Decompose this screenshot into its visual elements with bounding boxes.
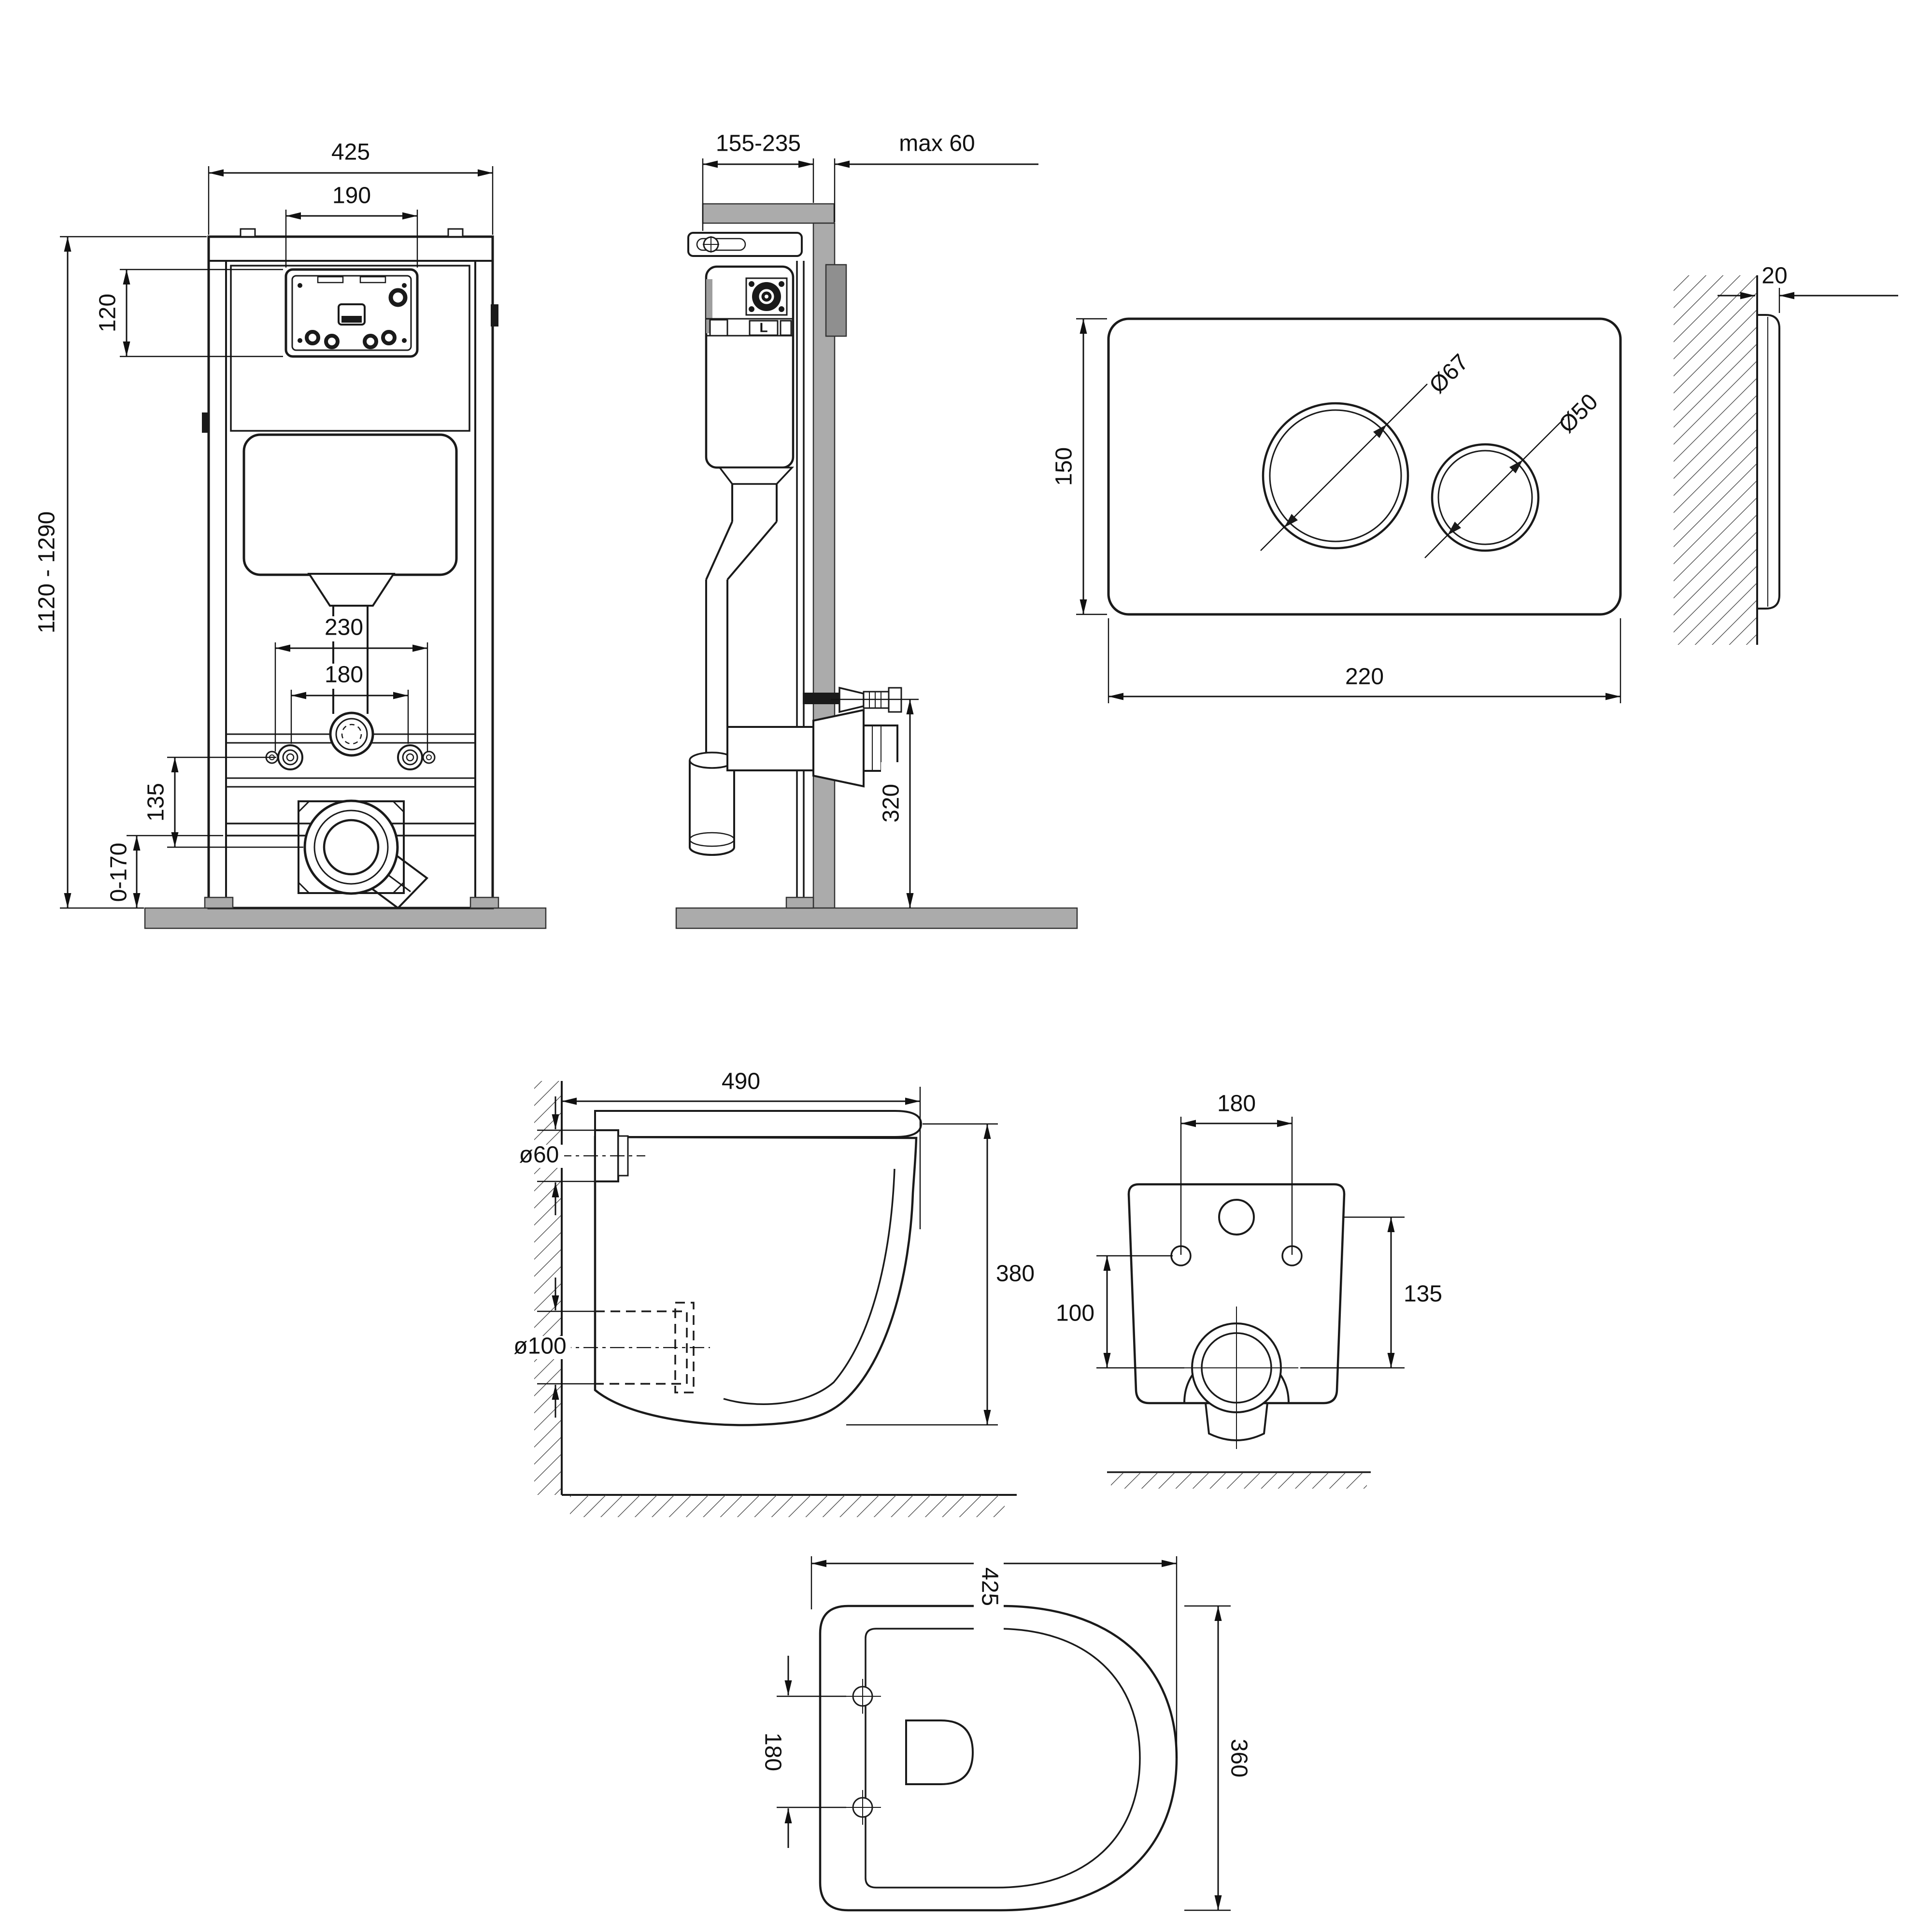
valve-mark-label: L bbox=[759, 320, 767, 335]
wall-hatch bbox=[1674, 275, 1757, 645]
outlet-connection bbox=[727, 710, 897, 786]
floor bbox=[145, 908, 546, 928]
dim-bottom-width: 360 bbox=[1184, 1606, 1251, 1910]
depth-range-label: 155-235 bbox=[716, 131, 801, 156]
inlet-dia-label: ø60 bbox=[519, 1142, 559, 1168]
rear-bolt-to-outlet-label: 100 bbox=[1056, 1301, 1094, 1326]
dim-frame-height: 1120 - 1290 bbox=[34, 237, 207, 908]
bottom-bolt-span-label: 180 bbox=[760, 1733, 785, 1771]
dim-plate-height: 150 bbox=[1051, 319, 1107, 614]
bowl-side-view: ø60 ø100 490 380 bbox=[509, 1069, 1035, 1517]
bolt-to-outlet-label: 135 bbox=[143, 783, 169, 822]
flush-pipe-side bbox=[690, 468, 792, 855]
dim-plate-width: 220 bbox=[1108, 618, 1620, 703]
plate-width-label: 220 bbox=[1345, 664, 1384, 690]
frame-width-label: 425 bbox=[331, 140, 370, 165]
base-adjust-label: 0-170 bbox=[106, 843, 132, 902]
floor-hatch bbox=[570, 1495, 1005, 1517]
flush-plate-side-view: 20 bbox=[1674, 263, 1898, 645]
rear-hole-to-outlet-label: 135 bbox=[1404, 1281, 1442, 1307]
rear-ground bbox=[1107, 1472, 1371, 1489]
bowl-bottom-view: 425 180 360 bbox=[760, 1541, 1251, 1910]
flush-plate-body bbox=[1108, 319, 1620, 614]
bowl-depth-label: 490 bbox=[722, 1069, 760, 1094]
flush-plate-front-view: Ø67 Ø50 150 220 bbox=[1051, 319, 1620, 703]
bottom-depth-label: 425 bbox=[977, 1567, 1002, 1606]
bowl-height-label: 380 bbox=[996, 1261, 1035, 1287]
plate-thickness-label: 20 bbox=[1762, 263, 1787, 289]
frame-front-view: 425 190 120 1120 - 1290 230 bbox=[34, 140, 546, 928]
frame-height-label: 1120 - 1290 bbox=[34, 511, 60, 634]
outlet-height-label: 320 bbox=[879, 784, 904, 823]
floor-side bbox=[676, 908, 1077, 928]
bolt-span-label: 180 bbox=[325, 662, 363, 688]
cistern-side: L bbox=[706, 267, 793, 468]
plate-profile bbox=[1757, 315, 1779, 609]
toilet-installation-drawing: 425 190 120 1120 - 1290 230 bbox=[0, 0, 1932, 1932]
technical-drawing-page: 425 190 120 1120 - 1290 230 bbox=[0, 0, 1932, 1932]
opening-width-label: 190 bbox=[332, 183, 371, 209]
opening-height-label: 120 bbox=[95, 294, 121, 332]
bowl-rear-view: 180 100 135 bbox=[1056, 1091, 1442, 1489]
dim-wall-max: max 60 bbox=[835, 131, 1038, 222]
plate-height-label: 150 bbox=[1051, 447, 1077, 486]
anchor-span-label: 230 bbox=[325, 615, 363, 640]
plate-mounting-box bbox=[826, 265, 846, 336]
frame-side-view: L bbox=[676, 131, 1077, 928]
wall-max-label: max 60 bbox=[899, 131, 975, 156]
wall-bracket bbox=[688, 233, 802, 256]
ceiling-slab bbox=[703, 204, 834, 223]
bowl-profile bbox=[595, 1111, 921, 1425]
bottom-body bbox=[820, 1606, 1177, 1910]
bottom-width-label: 360 bbox=[1226, 1739, 1251, 1777]
outlet-dia-label: ø100 bbox=[513, 1334, 566, 1359]
water-inlet bbox=[330, 713, 373, 755]
access-panel bbox=[286, 270, 417, 356]
rear-bolt-span-label: 180 bbox=[1217, 1091, 1256, 1117]
